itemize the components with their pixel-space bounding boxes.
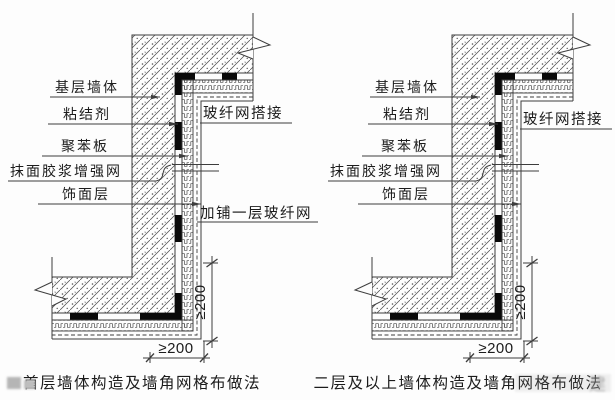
watermark-smudge: [24, 380, 35, 389]
construction-detail-drawing: 基层墙体 粘结剂 聚苯板 抹面胶浆增强网 饰面层 玻纤网搭接 加铺一层玻纤网 ≥…: [0, 0, 615, 400]
wall-section-geometry: [8, 13, 270, 363]
wall-section-geometry: [328, 13, 590, 363]
label-extra-mesh: 加铺一层玻纤网: [200, 205, 312, 222]
dimension-horizontal-text: ≥200: [478, 340, 513, 357]
label-mesh-render: 抹面胶浆增强网: [330, 163, 442, 179]
label-adhesive: 粘结剂: [63, 106, 111, 122]
label-base-wall: 基层墙体: [375, 79, 439, 95]
diagram-first-floor: 基层墙体 粘结剂 聚苯板 抹面胶浆增强网 饰面层 玻纤网搭接 加铺一层玻纤网 ≥…: [8, 13, 318, 392]
watermark-text: 建: [589, 375, 606, 394]
label-eps-board: 聚苯板: [381, 138, 429, 154]
label-mesh-overlap: 玻纤网搭接: [203, 105, 283, 122]
label-adhesive: 粘结剂: [383, 106, 431, 122]
watermark-smudge: [7, 377, 21, 389]
dimension-horizontal-text: ≥200: [158, 340, 193, 357]
label-finish-layer: 饰面层: [62, 186, 110, 202]
dimension-vertical-text: ≥200: [192, 284, 209, 319]
label-mesh-overlap: 玻纤网搭接: [523, 111, 603, 128]
label-finish-layer: 饰面层: [382, 186, 430, 202]
label-mesh-render: 抹面胶浆增强网: [10, 163, 122, 179]
construction-detail-page: 基层墙体 粘结剂 聚苯板 抹面胶浆增强网 饰面层 玻纤网搭接 加铺一层玻纤网 ≥…: [0, 0, 615, 400]
dimension-vertical-text: ≥200: [512, 284, 529, 319]
label-eps-board: 聚苯板: [61, 138, 109, 154]
diagram-upper-floors: 基层墙体 粘结剂 聚苯板 抹面胶浆增强网 饰面层 玻纤网搭接 ≥200 ≥200…: [313, 13, 612, 392]
label-base-wall: 基层墙体: [55, 79, 119, 95]
caption-first-floor: 首层墙体构造及墙角网格布做法: [23, 374, 261, 392]
